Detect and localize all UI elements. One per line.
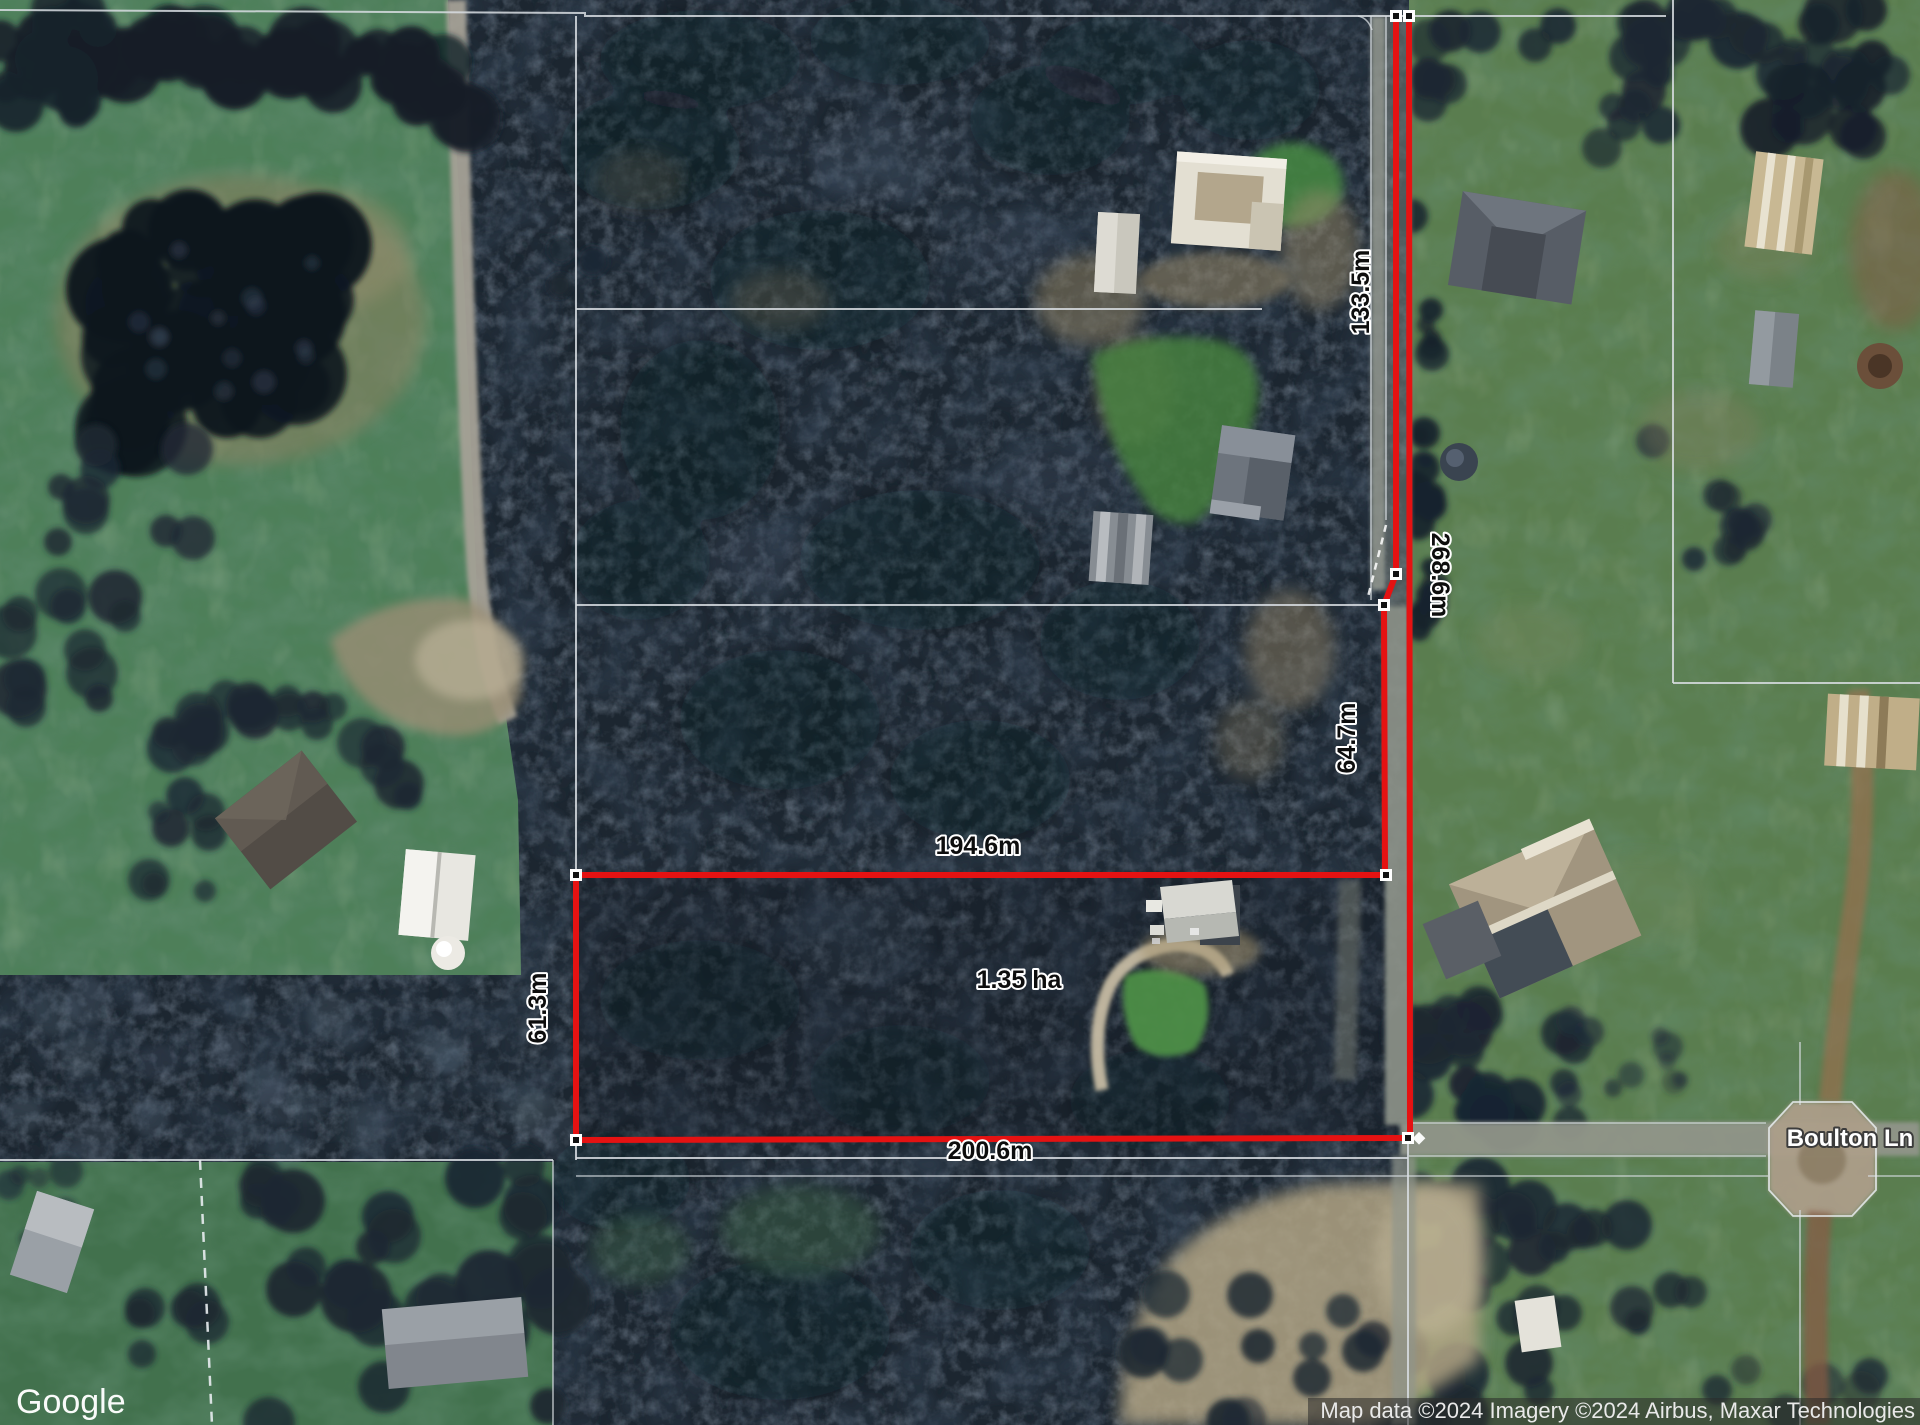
svg-text:Boulton Ln: Boulton Ln (1787, 1125, 1914, 1152)
svg-text:Google: Google (16, 1383, 126, 1421)
svg-text:1.35 ha: 1.35 ha (977, 966, 1063, 994)
svg-text:Map data ©2024 Imagery ©2024 A: Map data ©2024 Imagery ©2024 Airbus, Max… (1320, 1398, 1915, 1423)
svg-text:64.7m: 64.7m (1333, 703, 1361, 774)
svg-text:61.3m: 61.3m (524, 973, 552, 1044)
svg-text:133.5m: 133.5m (1347, 250, 1375, 335)
svg-text:268.6m: 268.6m (1426, 533, 1454, 618)
svg-text:194.6m: 194.6m (936, 832, 1021, 860)
svg-text:200.6m: 200.6m (948, 1137, 1033, 1165)
